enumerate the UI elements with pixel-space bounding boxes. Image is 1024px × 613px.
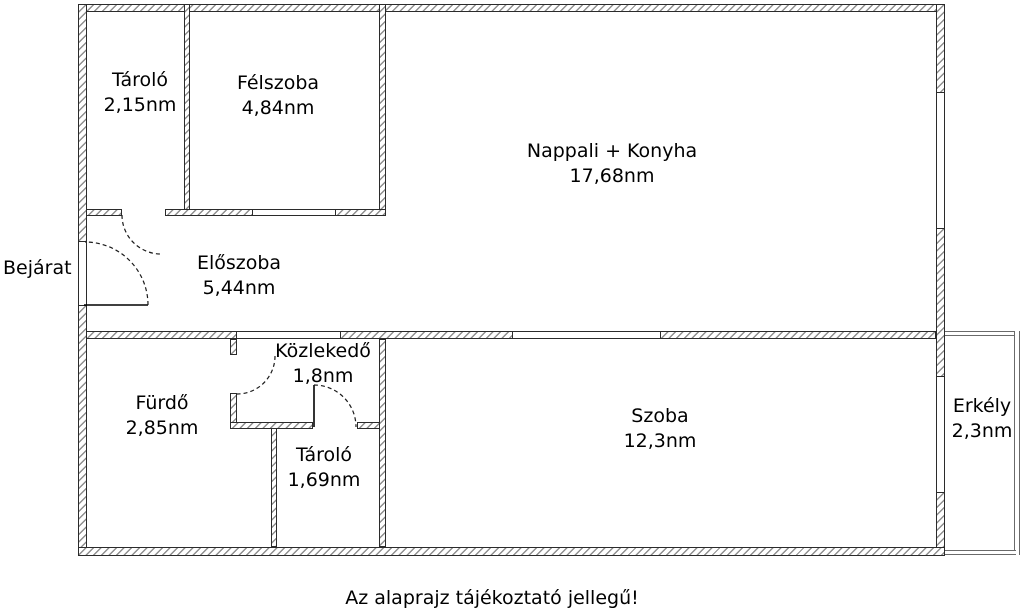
- room-area: 17,68nm: [527, 164, 697, 189]
- room-name: Tároló: [104, 68, 177, 93]
- wall-kozlekedo-left-upper: [230, 339, 237, 355]
- room-area: 4,84nm: [237, 96, 319, 121]
- window-nappali: [936, 93, 945, 228]
- wall-kozlekedo-left-lower: [230, 393, 237, 423]
- wall-tarolo-bottom-a: [86, 209, 122, 216]
- room-name: Közlekedő: [275, 339, 371, 364]
- erkely-right-line: [1014, 331, 1020, 555]
- room-area: 2,85nm: [126, 416, 199, 441]
- room-label-nappali-konyha: Nappali + Konyha 17,68nm: [527, 139, 697, 189]
- wall-middle-right: [660, 331, 936, 339]
- room-area: 2,3nm: [952, 419, 1013, 444]
- wall-outer-top: [78, 4, 945, 12]
- room-label-szoba: Szoba 12,3nm: [624, 404, 697, 454]
- room-area: 5,44nm: [197, 276, 281, 301]
- room-label-furdo: Fürdő 2,85nm: [126, 391, 199, 441]
- room-area: 2,15nm: [104, 93, 177, 118]
- floor-plan: Tároló 2,15nm Félszoba 4,84nm Nappali + …: [0, 0, 1024, 613]
- room-area: 12,3nm: [624, 429, 697, 454]
- entrance-label: Bejárat: [3, 256, 72, 281]
- erkely-top-line: [945, 331, 1016, 336]
- opening-kozlekedo-top: [237, 331, 340, 339]
- room-label-eloszoba: Előszoba 5,44nm: [197, 251, 281, 301]
- room-name: Szoba: [624, 404, 697, 429]
- room-label-tarolo-bottom: Tároló 1,69nm: [288, 443, 361, 493]
- wall-middle-left: [86, 331, 237, 339]
- erkely-bottom-line: [945, 550, 1016, 555]
- room-name: Fürdő: [126, 391, 199, 416]
- room-label-kozlekedo: Közlekedő 1,8nm: [275, 339, 371, 389]
- room-area: 1,8nm: [275, 364, 371, 389]
- wall-tarolo-felszoba-divider: [184, 4, 190, 216]
- room-area: 1,69nm: [288, 468, 361, 493]
- wall-felszoba-right: [379, 4, 386, 216]
- room-label-erkely: Erkély 2,3nm: [952, 394, 1013, 444]
- wall-outer-left-upper: [78, 4, 87, 242]
- disclaimer-note: Az alaprajz tájékoztató jellegű!: [345, 586, 639, 610]
- wall-felszoba-bottom-a: [165, 209, 253, 216]
- wall-furdo-tarolo-divider: [271, 428, 277, 547]
- wall-outer-right-middle: [936, 228, 945, 377]
- room-label-felszoba: Félszoba 4,84nm: [237, 71, 319, 121]
- entrance-door-swing-arc: [85, 242, 148, 305]
- furdo-door-swing-arc: [237, 356, 275, 394]
- wall-felszoba-bottom-b: [335, 209, 386, 216]
- room-name: Erkély: [952, 394, 1013, 419]
- opening-nappali-szoba: [513, 331, 660, 339]
- tarolo-bottom-door-swing-arc: [314, 385, 356, 427]
- window-szoba-erkely: [936, 377, 945, 492]
- room-name: Nappali + Konyha: [527, 139, 697, 164]
- opening-felszoba: [253, 209, 335, 216]
- wall-middle-center: [340, 331, 513, 339]
- wall-outer-left-lower: [78, 305, 87, 556]
- room-name: Előszoba: [197, 251, 281, 276]
- room-name: Félszoba: [237, 71, 319, 96]
- room-label-tarolo-top: Tároló 2,15nm: [104, 68, 177, 118]
- wall-szoba-left: [379, 339, 386, 547]
- wall-outer-right-upper: [936, 4, 945, 93]
- wall-outer-bottom: [78, 547, 945, 556]
- entrance-door-opening: [78, 242, 87, 305]
- tarolo-top-door-swing-arc: [122, 215, 161, 254]
- room-name: Tároló: [288, 443, 361, 468]
